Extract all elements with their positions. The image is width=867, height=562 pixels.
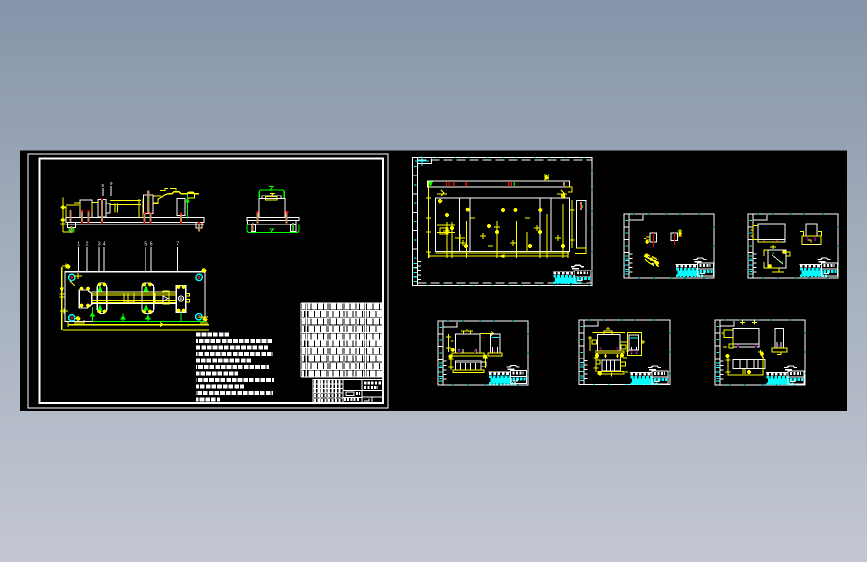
svg-text:2: 2 xyxy=(86,242,89,248)
svg-text:1: 1 xyxy=(77,242,80,248)
svg-text:5: 5 xyxy=(144,242,147,248)
svg-text:4: 4 xyxy=(103,242,106,248)
svg-text:6: 6 xyxy=(150,242,153,248)
svg-text:3: 3 xyxy=(98,242,101,248)
svg-text:7: 7 xyxy=(176,242,179,248)
